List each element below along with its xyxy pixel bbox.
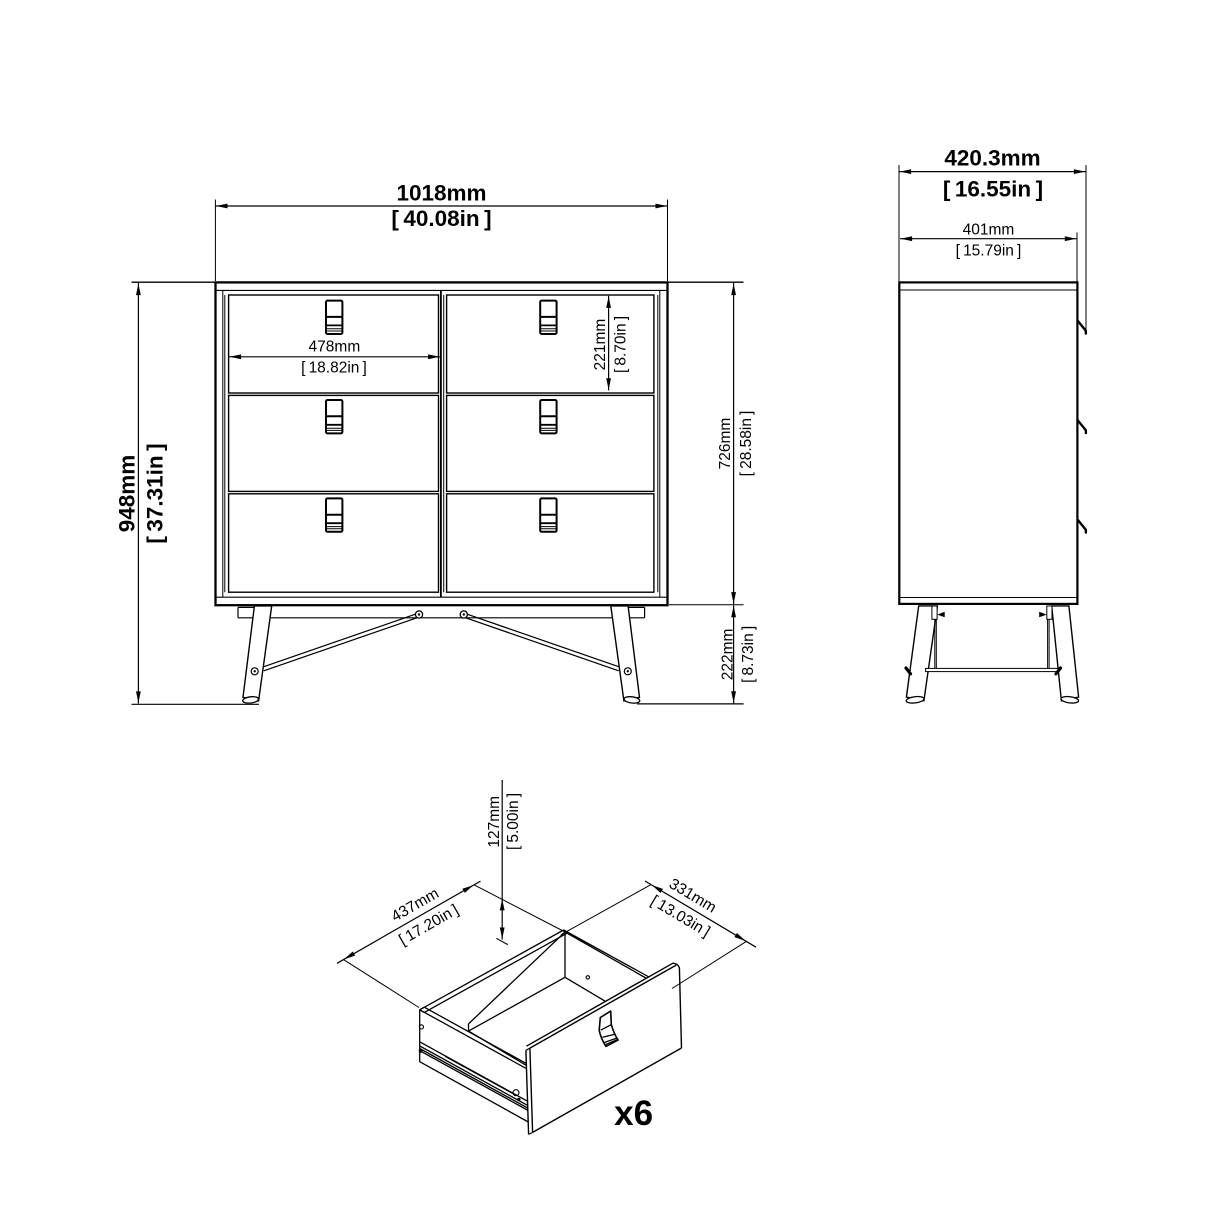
- svg-text:948mm: 948mm: [115, 455, 140, 533]
- svg-text:[ 15.79in ]: [ 15.79in ]: [956, 242, 1022, 259]
- svg-text:[ 40.08in ]: [ 40.08in ]: [391, 206, 491, 231]
- svg-text:[ 8.70in ]: [ 8.70in ]: [612, 316, 629, 373]
- svg-text:222mm: 222mm: [720, 629, 737, 681]
- svg-text:221mm: 221mm: [592, 319, 609, 371]
- svg-text:726mm: 726mm: [717, 418, 734, 470]
- svg-text:401mm: 401mm: [963, 221, 1015, 238]
- svg-text:x6: x6: [614, 1094, 653, 1133]
- svg-text:[ 5.00in ]: [ 5.00in ]: [505, 793, 522, 850]
- svg-text:420.3mm: 420.3mm: [944, 145, 1040, 170]
- svg-text:[ 8.73in ]: [ 8.73in ]: [740, 626, 757, 683]
- svg-text:478mm: 478mm: [309, 339, 361, 356]
- svg-text:[ 37.31in ]: [ 37.31in ]: [143, 443, 168, 543]
- svg-text:127mm: 127mm: [486, 796, 503, 848]
- svg-text:[ 28.58in ]: [ 28.58in ]: [738, 411, 755, 477]
- svg-text:[ 16.55in ]: [ 16.55in ]: [943, 177, 1043, 202]
- svg-text:1018mm: 1018mm: [396, 180, 486, 205]
- svg-text:[ 18.82in ]: [ 18.82in ]: [301, 360, 367, 377]
